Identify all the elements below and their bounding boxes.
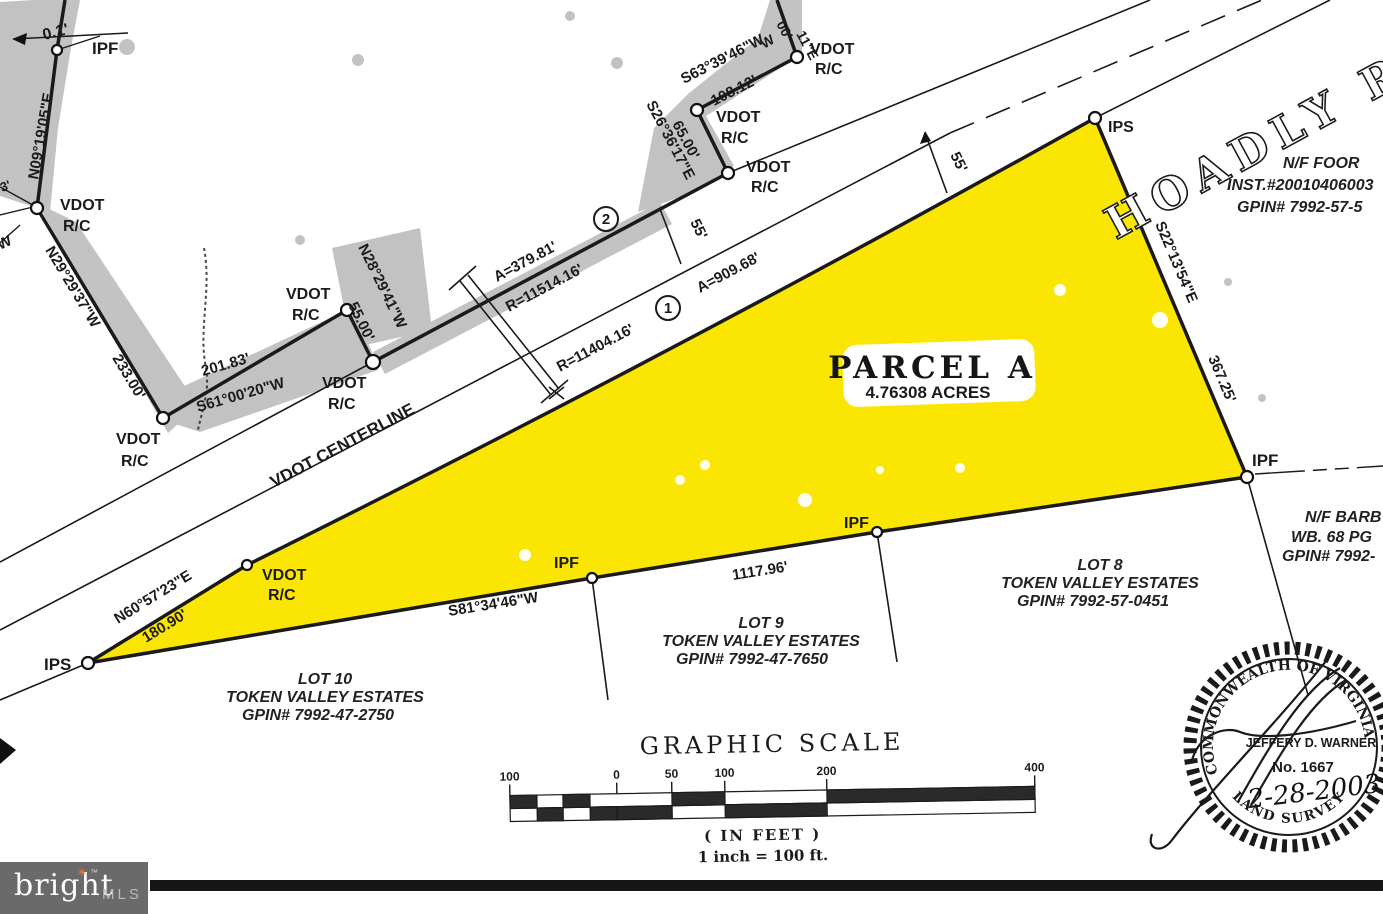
dim-55-west: 55' bbox=[686, 216, 710, 242]
seal-surveyor-name: JEFFERY D. WARNER bbox=[1246, 736, 1377, 750]
svg-text:R/C: R/C bbox=[121, 453, 149, 470]
svg-text:200: 200 bbox=[816, 764, 837, 778]
marker-ipf-lot8: IPF bbox=[844, 515, 869, 532]
corner-mark bbox=[0, 738, 16, 764]
svg-text:2: 2 bbox=[602, 211, 610, 228]
scale-bar bbox=[510, 786, 1035, 821]
brightmls-brand: bright bbox=[14, 868, 114, 903]
marker-ipf-mid: IPF bbox=[554, 555, 579, 572]
lot10-block: LOT 10 TOKEN VALLEY ESTATES GPIN# 7992-4… bbox=[226, 671, 424, 724]
svg-text:R/C: R/C bbox=[292, 307, 320, 324]
scale-title: GRAPHIC SCALE bbox=[639, 728, 904, 761]
svg-text:R/C: R/C bbox=[751, 179, 779, 196]
svg-text:INST.#20010406003: INST.#20010406003 bbox=[1227, 177, 1374, 194]
seal-license-number: No. 1667 bbox=[1272, 759, 1334, 776]
footer-bar bbox=[150, 880, 1383, 891]
svg-text:VDOT: VDOT bbox=[60, 197, 105, 214]
svg-text:VDOT: VDOT bbox=[116, 431, 161, 448]
svg-text:LOT 9: LOT 9 bbox=[738, 615, 783, 632]
dim-tick-55-west bbox=[660, 209, 681, 264]
plat-map-page: 3' 0.1' IPF N09°19'05"E W VDOT R/C N29°2… bbox=[0, 0, 1383, 914]
signature-strokes bbox=[1151, 656, 1356, 849]
svg-text:100: 100 bbox=[499, 769, 520, 783]
svg-text:WB. 68 PG: WB. 68 PG bbox=[1291, 529, 1372, 546]
brightmls-star-icon: ✶ bbox=[76, 864, 88, 881]
brightmls-logo: bright ✶ ™ MLS bbox=[0, 862, 148, 914]
svg-text:VDOT: VDOT bbox=[286, 286, 331, 303]
svg-text:VDOT: VDOT bbox=[746, 159, 791, 176]
lot-line-8-9 bbox=[877, 532, 897, 662]
svg-text:R/C: R/C bbox=[815, 61, 843, 78]
curve1-radius: R=11404.16' bbox=[554, 321, 637, 376]
marker-ips-top: IPS bbox=[1108, 119, 1134, 136]
dim-55-east: 55' bbox=[946, 149, 970, 175]
fragment-w1: W bbox=[0, 232, 15, 254]
svg-text:TOKEN VALLEY ESTATES: TOKEN VALLEY ESTATES bbox=[1001, 575, 1199, 592]
distance-1117: 1117.96' bbox=[731, 558, 789, 584]
svg-text:VDOT: VDOT bbox=[322, 375, 367, 392]
lot9-block: LOT 9 TOKEN VALLEY ESTATES GPIN# 7992-47… bbox=[662, 615, 860, 668]
plat-drawing: 3' 0.1' IPF N09°19'05"E W VDOT R/C N29°2… bbox=[0, 0, 1383, 914]
curve1-arc: A=909.68' bbox=[694, 249, 763, 296]
svg-text:100: 100 bbox=[714, 766, 735, 780]
svg-text:R/C: R/C bbox=[268, 587, 296, 604]
marker-ips-west: IPS bbox=[44, 655, 71, 674]
marker-ipf-east: IPF bbox=[1252, 451, 1278, 470]
svg-text:TOKEN VALLEY ESTATES: TOKEN VALLEY ESTATES bbox=[226, 689, 424, 706]
curve2-bubble: 2 bbox=[594, 207, 618, 231]
svg-text:N/F FOOR: N/F FOOR bbox=[1283, 155, 1360, 172]
svg-text:400: 400 bbox=[1024, 760, 1045, 774]
centerline-label: VDOT CENTERLINE bbox=[267, 399, 418, 491]
dim-tick-55-east bbox=[925, 133, 947, 193]
curve1-bubble: 1 bbox=[656, 296, 680, 320]
svg-text:R/C: R/C bbox=[721, 130, 749, 147]
vdot-rc-2: VDOT R/C bbox=[116, 431, 161, 470]
parcel-area: 4.76308 ACRES bbox=[865, 383, 990, 402]
svg-text:GPIN# 7992-57-5: GPIN# 7992-57-5 bbox=[1237, 199, 1364, 216]
svg-text:TOKEN VALLEY ESTATES: TOKEN VALLEY ESTATES bbox=[662, 633, 860, 650]
brightmls-tm: ™ bbox=[90, 868, 98, 877]
svg-text:LOT 10: LOT 10 bbox=[298, 671, 352, 688]
svg-text:GPIN# 7992-47-2750: GPIN# 7992-47-2750 bbox=[242, 707, 394, 724]
dim-arrow bbox=[920, 131, 931, 144]
lot-line-9-10 bbox=[592, 578, 608, 700]
vdot-rc-4: VDOT R/C bbox=[322, 375, 367, 413]
svg-text:N/F BARB: N/F BARB bbox=[1305, 509, 1381, 526]
parcel-title: PARCEL A bbox=[828, 350, 1036, 386]
marker-ipf-top: IPF bbox=[92, 39, 118, 58]
vdot-rc-5: VDOT R/C bbox=[716, 109, 761, 147]
svg-text:VDOT: VDOT bbox=[716, 109, 761, 126]
svg-text:50: 50 bbox=[665, 767, 679, 781]
svg-text:GPIN# 7992-57-0451: GPIN# 7992-57-0451 bbox=[1017, 593, 1169, 610]
svg-text:1: 1 bbox=[664, 300, 672, 317]
svg-text:LOT 8: LOT 8 bbox=[1077, 557, 1122, 574]
svg-text:VDOT: VDOT bbox=[262, 567, 307, 584]
scale-ratio: 1 inch = 100 ft. bbox=[698, 846, 829, 866]
lot8-block: LOT 8 TOKEN VALLEY ESTATES GPIN# 7992-57… bbox=[1001, 557, 1199, 610]
svg-text:R/C: R/C bbox=[328, 396, 356, 413]
svg-text:GPIN# 7992-47-7650: GPIN# 7992-47-7650 bbox=[676, 651, 828, 668]
vdot-rc-3: VDOT R/C bbox=[286, 286, 331, 324]
svg-text:GPIN# 7992-: GPIN# 7992- bbox=[1282, 548, 1375, 565]
graphic-scale: GRAPHIC SCALE 100 0 50 100 200 400 ( IN … bbox=[499, 725, 1047, 869]
svg-text:0: 0 bbox=[613, 768, 620, 782]
adjoiner-barb: N/F BARB WB. 68 PG GPIN# 7992- bbox=[1282, 509, 1381, 565]
vdot-rc-7: VDOT R/C bbox=[746, 159, 791, 196]
svg-text:R/C: R/C bbox=[63, 218, 91, 235]
brightmls-mls: MLS bbox=[102, 886, 142, 903]
scale-units: ( IN FEET ) bbox=[704, 825, 822, 845]
vdot-rc-1: VDOT R/C bbox=[60, 197, 105, 235]
